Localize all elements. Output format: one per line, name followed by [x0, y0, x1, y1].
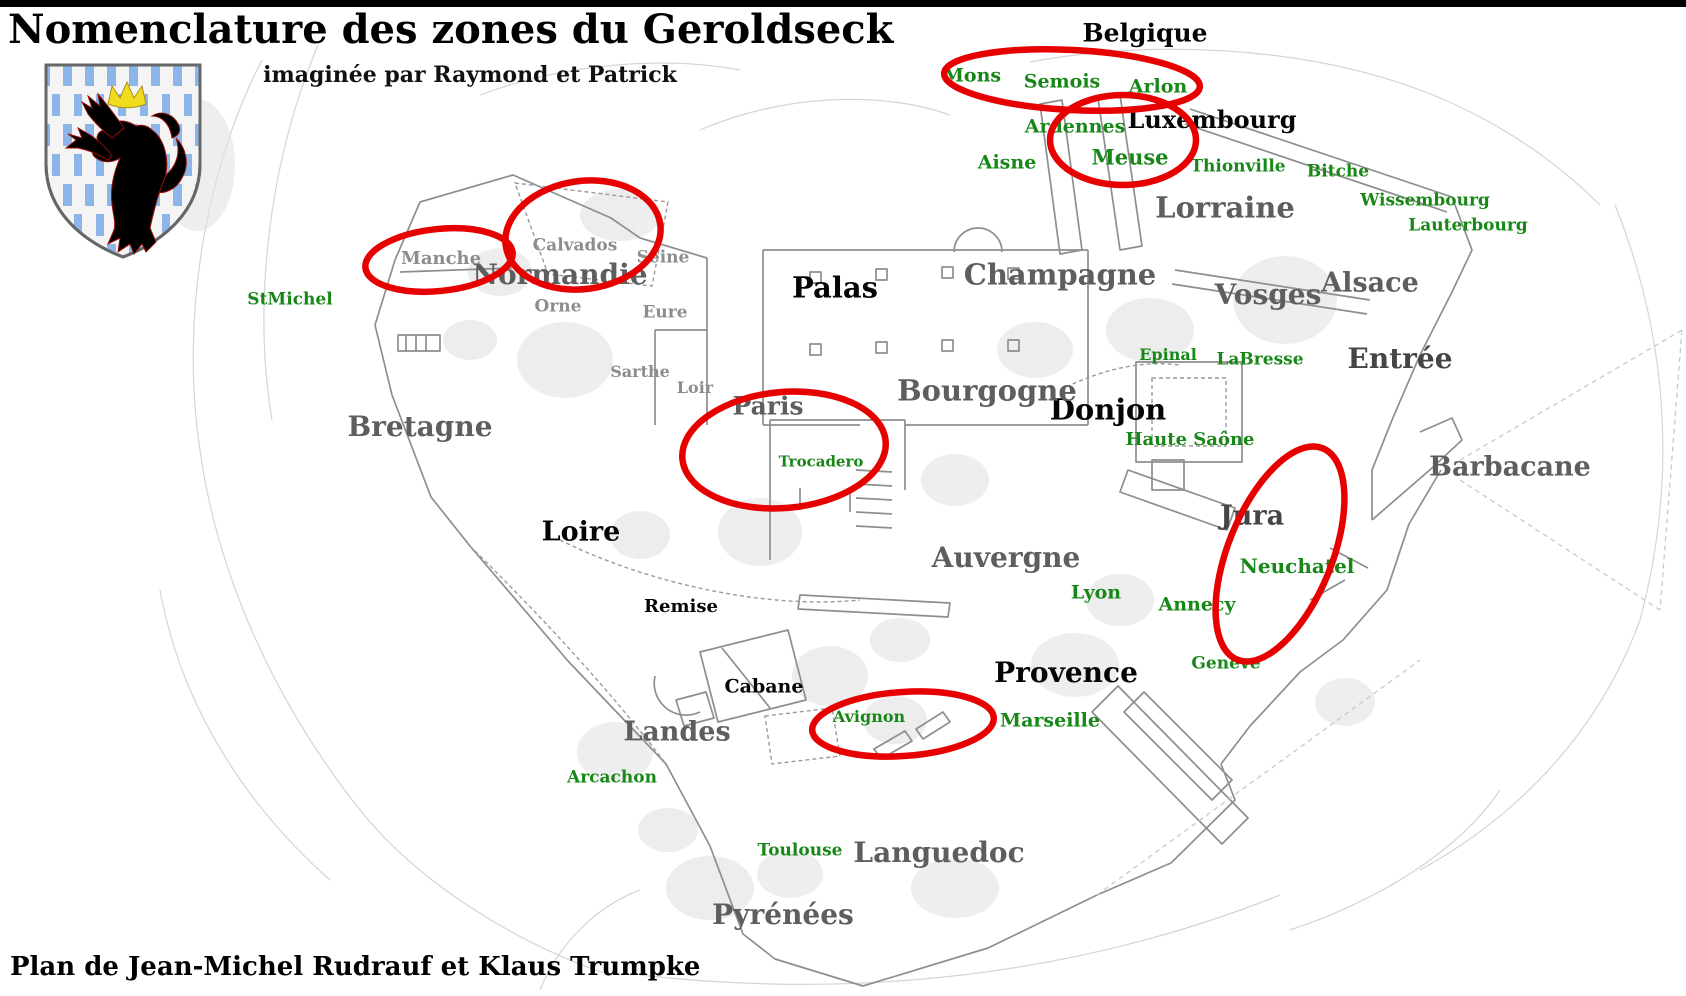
highlight-ellipse-7 — [810, 686, 996, 763]
plan-credit: Plan de Jean-Michel Rudrauf et Klaus Tru… — [10, 952, 700, 982]
annotation-ellipses — [0, 0, 1686, 996]
highlight-ellipse-6 — [1189, 429, 1371, 679]
geroldseck-zone-map: Nomenclature des zones du Geroldseck ima… — [0, 0, 1686, 996]
highlight-ellipse-4 — [362, 221, 516, 298]
highlight-ellipse-5 — [677, 383, 890, 516]
highlight-ellipse-3 — [498, 171, 668, 300]
